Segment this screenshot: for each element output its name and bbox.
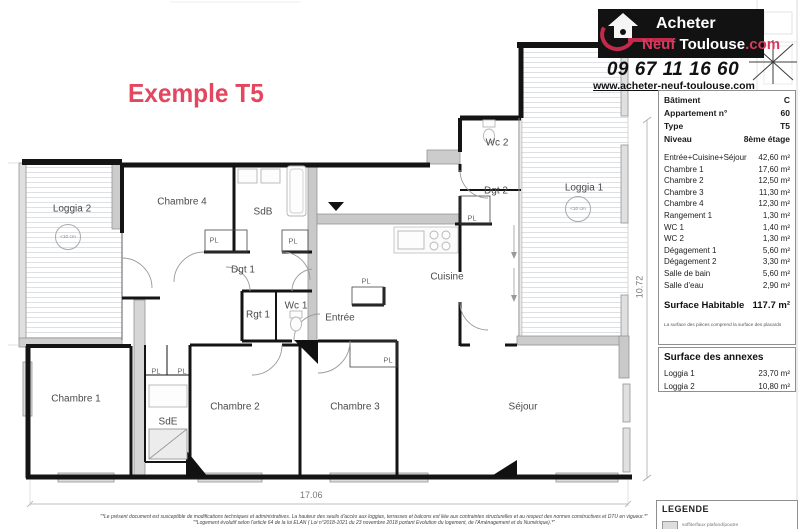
closet-label: PL	[151, 367, 160, 376]
room-label-wc-1: Wc 1	[285, 301, 308, 312]
brand-name-line1: Acheter	[656, 15, 716, 33]
table-row: TypeT5	[664, 120, 790, 133]
annexes-panel: Surface des annexes Loggia 123,70 m² Log…	[658, 347, 796, 392]
annexes-title: Surface des annexes	[664, 352, 790, 363]
room-label-sde: SdE	[159, 417, 178, 428]
closet-label: PL	[177, 367, 186, 376]
room-label-sejour: Séjour	[509, 402, 538, 413]
footnote-line-2: "*Logement évolutif selon l'article 64 d…	[28, 520, 720, 526]
table-row: WC 21,30 m²	[664, 233, 790, 245]
room-label-loggia-2: Loggia 2	[53, 204, 91, 215]
closet-label: PL	[383, 356, 392, 365]
legend-title: LEGENDE	[662, 504, 792, 514]
threshold-badge: <10 cm	[565, 196, 591, 222]
closet-label: PL	[361, 277, 370, 286]
table-row: Chambre 117,60 m²	[664, 164, 790, 176]
room-label-chambre-1: Chambre 1	[51, 394, 100, 405]
threshold-badge: <10 cm	[55, 224, 81, 250]
table-row: Chambre 311,30 m²	[664, 187, 790, 199]
table-row: Salle de bain5,60 m²	[664, 268, 790, 280]
table-row: Appartement n°60	[664, 107, 790, 120]
toilet-icon	[290, 311, 302, 331]
washbasin-icon	[149, 385, 187, 407]
table-row: Salle d'eau2,90 m²	[664, 280, 790, 292]
apartment-info-table: BâtimentC Appartement n°60 TypeT5 Niveau…	[658, 90, 796, 345]
shower-icon	[149, 429, 187, 459]
room-label-dgt-1: Dgt 1	[231, 265, 255, 276]
room-label-dgt-2: Dgt 2	[484, 186, 508, 197]
house-icon	[608, 13, 638, 26]
table-row: Loggia 210,80 m²	[664, 380, 790, 393]
table-row: Chambre 212,50 m²	[664, 175, 790, 187]
dimension-width: 17.06	[300, 490, 323, 500]
fixtures	[149, 120, 495, 459]
table-row: BâtimentC	[664, 94, 790, 107]
table-row: Niveau8ème étage	[664, 133, 790, 146]
room-label-cuisine: Cuisine	[430, 272, 463, 283]
table-row: Chambre 412,30 m²	[664, 198, 790, 210]
table-row: WC 11,40 m²	[664, 222, 790, 234]
loggia-areas	[20, 46, 628, 345]
brand-logo: Acheter Neuf Toulouse.com	[598, 9, 764, 58]
table-row: Entrée+Cuisine+Séjour42,60 m²	[664, 152, 790, 164]
washbasin-icon	[238, 169, 257, 183]
closet-label: PL	[209, 236, 218, 245]
closet-label: PL	[467, 214, 476, 223]
room-label-wc-2: Wc 2	[486, 138, 509, 149]
closet-label: PL	[288, 237, 297, 246]
page-title: Exemple T5	[116, 78, 276, 109]
room-label-chambre-4: Chambre 4	[157, 197, 206, 208]
loggia1-window	[511, 118, 522, 336]
washbasin-icon	[261, 169, 280, 183]
phone-number: 09 67 11 16 60	[596, 59, 750, 81]
room-label-chambre-2: Chambre 2	[210, 402, 259, 413]
brand-name-line2: Neuf Toulouse.com	[642, 36, 780, 53]
entry-door-icon	[294, 340, 318, 364]
room-label-rgt-1: Rgt 1	[246, 310, 270, 321]
table-row: Dégagement 23,30 m²	[664, 256, 790, 268]
table-row: Loggia 123,70 m²	[664, 367, 790, 380]
room-label-loggia-1: Loggia 1	[565, 183, 603, 194]
floor-plan-page: Exemple T5 Loggia 2 Chambre 4 SdB Dgt 1 …	[0, 0, 800, 529]
kitchen-counter-icon	[394, 227, 458, 253]
ventilation-icon	[328, 202, 344, 211]
table-note: La surface des pièces comprend la surfac…	[664, 322, 790, 327]
total-surface-row: Surface Habitable117.7 m²	[664, 300, 790, 311]
dimension-height: 10.72	[634, 276, 644, 299]
room-label-entree: Entrée	[325, 313, 354, 324]
table-row: Dégagement 15,60 m²	[664, 245, 790, 257]
room-label-chambre-3: Chambre 3	[330, 402, 379, 413]
room-label-sdb: SdB	[254, 207, 273, 218]
table-row: Rangement 11,30 m²	[664, 210, 790, 222]
